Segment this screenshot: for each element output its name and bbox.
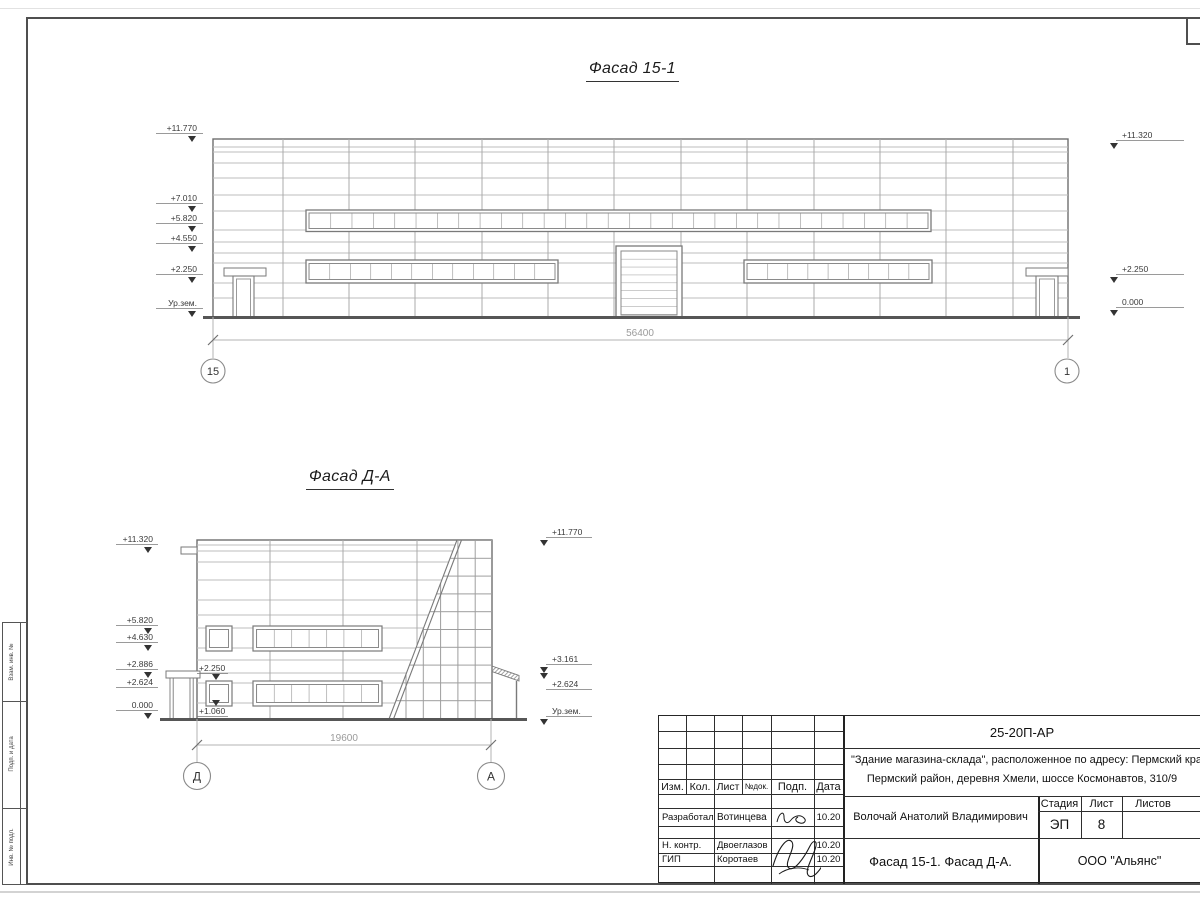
drawing-sheet: Фасад 15-1 Фасад Д-А [0,0,1200,900]
facade1-dimension: 56400 15 1 [201,317,1079,383]
facade1-window-ribbon-upper [306,210,931,232]
facade2-roof-vent [181,547,197,554]
facade1-axis-left-label: 15 [207,366,219,378]
strip-label-inv: Инв. № подл. [9,828,15,865]
facade2-elevation-marks-right: +11.770 +3.161 +2.624 Ур.зем. [540,527,592,725]
tb-name-gip: Коротаев [717,853,771,866]
strip-label-podp: Подп. и дата [9,736,15,771]
strip-line [3,808,27,809]
title-block: Изм. Кол. Лист №док. Подп. Дата Разработ… [658,715,1200,883]
tb-name-developed: Вотинцева [717,808,771,826]
facade2-window-lower [206,681,232,706]
tb-role-developed: Разработал [662,808,714,826]
tb-stage-value: ЭП [1038,811,1081,838]
facade1-window-ribbon-lower-right [744,260,932,283]
elevation-mark: +2.624 [127,677,154,687]
facade2-dimension-label: 19600 [330,733,358,744]
tb-line [659,748,1200,749]
elevation-mark: +2.886 [127,659,154,669]
tb-stage-label: Стадия [1038,796,1081,811]
facade1-elevation-marks-right: +11.320 +2.250 0.000 [1110,130,1184,316]
tb-customer: Волочай Анатолий Владимирович [843,796,1038,838]
tb-role-gip: ГИП [662,853,714,866]
elevation-mark: +1.060 [199,706,226,716]
elevation-mark: +2.250 [171,264,198,274]
signature-developed [771,806,816,828]
facade2-ribbon-upper [253,626,382,651]
tb-col-ndok: №док. [742,779,771,794]
facade1-dimension-label: 56400 [626,328,654,339]
facade2-ribbon-lower [253,681,382,706]
tb-line [659,731,843,732]
facade2-window-upper [206,626,232,651]
tb-organization: ООО "Альянс" [1038,838,1200,884]
facade2-drawing [160,540,527,720]
facade1-sectional-gate [616,246,682,317]
tb-col-izm: Изм. [659,779,686,794]
elevation-mark: +5.820 [127,615,154,625]
side-attribute-strip: Взам. инв. № Подп. и дата Инв. № подл. [2,622,27,885]
tb-doc-code: 25-20П-АР [843,716,1200,748]
tb-line [659,764,843,765]
facade2-canopy-right [492,666,519,719]
tb-name-ncontrol: Двоеглазов [717,838,771,853]
elevation-mark: +3.161 [552,654,579,664]
tb-col-list: Лист [714,779,742,794]
facade1-window-ribbon-lower-left [306,260,558,283]
elevation-mark: Ур.зем. [168,298,197,308]
tb-line [659,794,843,795]
facade2-axis-left-label: Д [193,770,201,784]
strip-line [20,623,21,884]
facade2-axis-right-label: А [487,770,495,784]
elevation-mark: 0.000 [132,700,154,710]
elevation-mark: Ур.зем. [552,706,581,716]
tb-drawing-name: Фасад 15-1. Фасад Д-А. [843,838,1038,884]
signature-control-gip [765,830,821,882]
elevation-mark: +11.320 [123,534,154,544]
elevation-mark: +11.770 [167,123,198,133]
elevation-mark: +11.320 [1122,130,1153,140]
facade1-drawing [203,139,1080,318]
strip-label-vzam: Взам. инв. № [9,643,15,680]
tb-project-line2: Пермский район, деревня Хмели, шоссе Кос… [843,770,1200,788]
elevation-mark: +2.250 [199,663,226,673]
tb-project-line1: "Здание магазина-склада", расположенное … [851,752,1200,768]
tb-line [714,716,715,884]
tb-sheets-label: Листов [1122,796,1184,811]
tb-sheet-value: 8 [1081,811,1122,838]
elevation-mark: +7.010 [171,193,198,203]
strip-line [3,701,27,702]
tb-col-podp: Подп. [771,779,814,794]
elevation-mark: +4.550 [171,233,198,243]
elevation-mark: 0.000 [1122,297,1144,307]
tb-date-developed: 10.20 [814,808,843,826]
tb-col-kol: Кол. [686,779,714,794]
facade2-dimension: 19600 Д А [184,719,505,790]
tb-col-data: Дата [814,779,843,794]
facade1-elevation-marks-left: +11.770 +7.010 +5.820 +4.550 +2.250 Ур.з… [156,123,203,317]
facade2-portico [166,671,200,720]
facade2-elevation-marks-left: +11.320 +5.820 +4.630 +2.886 +2.624 0.00… [116,534,158,719]
tb-sheet-label: Лист [1081,796,1122,811]
elevation-mark: +11.770 [552,527,583,537]
elevation-mark: +5.820 [171,213,198,223]
elevation-mark: +4.630 [127,632,154,642]
facade1-axis-right-label: 1 [1064,366,1070,378]
tb-role-ncontrol: Н. контр. [662,838,714,853]
elevation-mark: +2.250 [1122,264,1149,274]
elevation-mark: +2.624 [552,679,579,689]
